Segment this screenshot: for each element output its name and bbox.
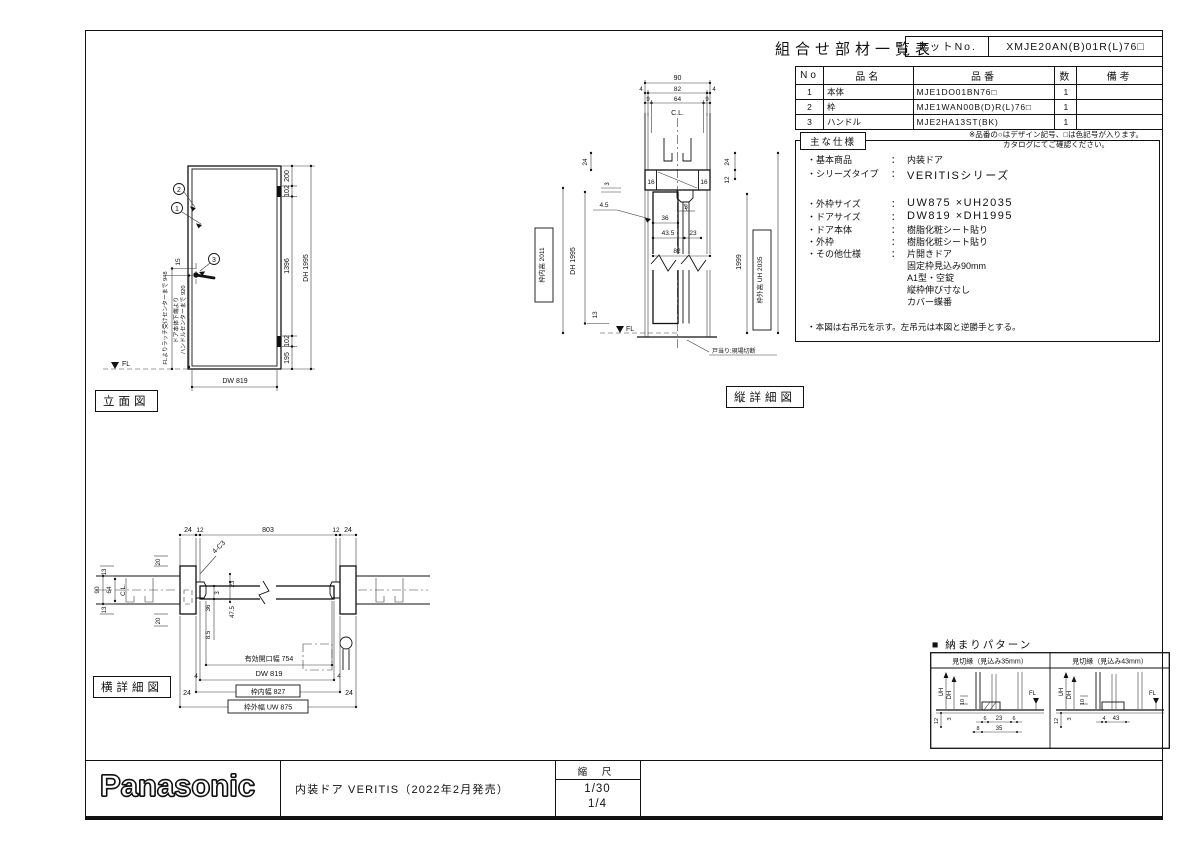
pattern-section: 見切縁（見込み35mm） 見切縁（見込み43mm） UH DH 10 12 3 …: [930, 652, 1170, 749]
row-name: 枠: [823, 100, 913, 115]
elevation-view: 2 1 3 200 102 1396 102 195 DH 1995: [85, 148, 340, 428]
dim-16-left: 16: [647, 179, 655, 186]
dim-dw: DW 819: [255, 669, 282, 678]
dim-24-right: 24: [724, 158, 731, 166]
set-no-value: XMJE20AN(B)01R(L)76□: [989, 37, 1162, 56]
table-row: 3 ハンドル MJE2HA13ST(BK) 1: [796, 115, 1163, 130]
dim-16-right: 16: [700, 179, 708, 186]
hdetail-bottom-dims: 有効開口幅 754 DW 819 4 4 枠内幅 827 24 24 枠外幅 U…: [179, 601, 357, 713]
parts-header-row: No 品名 品番 数 備考: [796, 67, 1163, 85]
dim-dw: DW 819: [222, 378, 247, 385]
hdetail-top-dims: 24 12 803 12 24: [179, 527, 357, 582]
pattern-35-drawing: UH DH 10 12 3 6 23 6 8 35 FL: [934, 672, 1044, 733]
product-line: 内装ドア VERITIS（2022年2月発売）: [295, 781, 509, 797]
hinge-bottom: [277, 336, 282, 347]
dim-64: 64: [106, 586, 113, 594]
dim-1396: 1396: [284, 258, 291, 274]
hdetail-inner-dims: 23 3 36 47.5 8.5: [206, 573, 236, 640]
row-part: MJE1DO01BN76□: [913, 85, 1055, 100]
row-name: ハンドル: [823, 115, 913, 130]
dim-102-top: 102: [284, 185, 291, 197]
dim-3: 3: [947, 717, 953, 720]
dim-803: 803: [262, 527, 274, 534]
dim-24-left: 24: [582, 158, 589, 166]
title-block-divider: [640, 760, 641, 818]
spec-colon: ：: [891, 153, 907, 166]
parts-note-line1: ※品番の○はデザイン記号、□は色記号が入ります。: [950, 130, 1162, 140]
fl-marker-icon: [616, 326, 624, 333]
spec-value: VERITISシリーズ: [907, 167, 1010, 183]
elevation-fl: FL: [103, 361, 190, 369]
dim-43-5: 43.5: [662, 230, 675, 237]
spec-label: ・シリーズタイプ: [807, 167, 891, 183]
row-remarks: [1077, 115, 1163, 130]
specs-title: 主な仕様: [800, 132, 866, 150]
row-remarks: [1077, 85, 1163, 100]
dim-3: 3: [1067, 717, 1073, 720]
vdetail-inner-dims: 4.5 36 3 43.5 23 82: [593, 202, 711, 257]
fl-label: FL: [122, 361, 130, 368]
door-stop-section: [677, 190, 693, 202]
vertical-detail-view: 90 4 82 4 9 64 9 C.L.: [525, 58, 785, 373]
spec-row: ・ドアサイズ：DW819 ×DH1995: [807, 210, 1013, 223]
dim-4-r: 4: [337, 673, 341, 680]
dim-12-right: 12: [724, 176, 731, 184]
hdetail-geometry: [96, 566, 430, 670]
spec-row: ・シリーズタイプ：VERITISシリーズ: [807, 167, 1010, 183]
left-door-stop: [196, 582, 206, 598]
uh-arrow-label: UH: [939, 688, 945, 697]
set-no-label: セットNo.: [906, 37, 989, 56]
dim-13: 13: [592, 311, 599, 319]
vdetail-left-dims: 24 3 枠内高 2011 DH 1995 13: [535, 152, 621, 334]
dim-8-5: 8.5: [206, 630, 212, 639]
dim-13-top: 13: [102, 568, 108, 575]
spec-row: ・外枠サイズ：UW875 ×UH2035: [807, 197, 1013, 210]
row-remarks: [1077, 100, 1163, 115]
col-no: No: [796, 67, 824, 85]
title-block-divider: [280, 760, 281, 818]
spec-value: カバー蝶番: [907, 295, 952, 308]
dim-opening: 有効開口幅 754: [245, 654, 294, 663]
dim-dh: DH 1995: [570, 247, 577, 275]
dim-12-r: 12: [332, 527, 340, 534]
scale-label: 縮 尺: [555, 764, 640, 778]
ceiling-runner: [664, 138, 672, 161]
dim-3: 3: [215, 591, 221, 595]
dim-3-left: 3: [605, 182, 611, 186]
dim-90: 90: [94, 586, 101, 594]
dim-20-bottom: 20: [156, 617, 162, 624]
vertical-detail-label: 縦詳細図: [726, 386, 804, 408]
pattern-section-title: ■ 納まりパターン: [932, 637, 1032, 652]
table-row: 1 本体 MJE1DO01BN76□ 1: [796, 85, 1163, 100]
doorstop-note: 戸当り:現場切断: [712, 347, 756, 355]
dim-20-top: 20: [156, 558, 162, 565]
spec-value: 内装ドア: [907, 153, 943, 166]
scale-value-1: 1/30: [555, 783, 640, 795]
row-qty: 1: [1055, 115, 1077, 130]
dim-3-stop: 3: [684, 204, 688, 211]
row-no: 3: [796, 115, 824, 130]
dim-82: 82: [674, 86, 682, 93]
dim-4: 4: [1102, 716, 1105, 722]
fl-label: FL: [1029, 691, 1037, 697]
dim-6-r: 6: [1012, 716, 1015, 722]
row-no: 1: [796, 85, 824, 100]
col-qty: 数: [1055, 67, 1077, 85]
box-outer-width: 枠外幅 UW 875: [244, 703, 292, 712]
dh-arrow-label: DH: [947, 691, 953, 700]
dim-82-door: 82: [673, 248, 681, 255]
callout-2: 2: [177, 187, 181, 194]
fl-marker-icon: [1153, 698, 1159, 704]
hinge-top: [277, 186, 282, 197]
dim-13-bottom: 13: [102, 606, 108, 613]
dim-12-l: 12: [196, 527, 204, 534]
pattern-43-header: 見切縁（見込み43mm）: [1072, 657, 1147, 666]
dim-10: 10: [960, 699, 966, 705]
spec-label: ・ドアサイズ: [807, 210, 891, 223]
dim-47-5: 47.5: [230, 606, 236, 618]
dim-4-5: 4.5: [599, 202, 608, 209]
callout-3: 3: [212, 257, 216, 264]
horizontal-detail-label: 横詳細図: [93, 676, 171, 698]
elevation-right-dims: 200 102 1396 102 195 DH 1995: [282, 165, 315, 370]
dim-36: 36: [206, 604, 212, 611]
right-jamb-section: [340, 566, 356, 614]
centerline-label: C.L.: [671, 110, 684, 117]
spec-row: カバー蝶番: [807, 295, 952, 308]
specs-note: ・本図は右吊元を示す。左吊元は本図と逆勝手とする。: [807, 321, 1021, 333]
dim-9-left: 9: [646, 97, 650, 103]
dim-23: 23: [996, 716, 1003, 722]
elevation-bottom-dims: DW 819: [191, 370, 278, 391]
dim-200: 200: [284, 170, 291, 182]
title-block-divider: [85, 760, 1163, 761]
dim-6-l: 6: [983, 716, 986, 722]
fl-label: FL: [1149, 691, 1157, 697]
dim-8: 8: [976, 726, 979, 732]
box-inner-height: 枠内高 2011: [537, 247, 546, 283]
scale-value-2: 1/4: [555, 798, 640, 810]
table-row: 2 枠 MJE1WAN00B(D)R(L)76□ 1: [796, 100, 1163, 115]
set-no-box: セットNo. XMJE20AN(B)01R(L)76□: [905, 36, 1163, 57]
dim-35: 35: [996, 726, 1003, 732]
col-remarks: 備考: [1077, 67, 1163, 85]
brand-logo: Panasonic: [100, 768, 255, 804]
dim-64: 64: [674, 96, 682, 103]
note-latch: FLよりラッチ受けセンターまで 948: [161, 271, 169, 364]
fl-marker-icon: [111, 362, 119, 369]
hdetail-c3-note: 4-C3: [200, 540, 227, 574]
spec-row: ・基本商品：内装ドア: [807, 153, 943, 166]
dh-arrow-label: DH: [1067, 691, 1073, 700]
dim-43: 43: [1113, 716, 1120, 722]
dim-24-il: 24: [183, 690, 191, 697]
note-handle-1: ドア本体下端より: [172, 297, 180, 343]
dim-24-ir: 24: [345, 690, 353, 697]
spec-colon: [891, 295, 907, 308]
dim-90: 90: [674, 75, 682, 82]
col-part: 品番: [913, 67, 1055, 85]
dim-24-l: 24: [184, 527, 192, 534]
dim-102-bottom: 102: [284, 335, 291, 347]
specs-box: ・基本商品：内装ドア ・シリーズタイプ：VERITISシリーズ ・外枠サイズ：U…: [795, 140, 1160, 342]
spec-colon: ：: [891, 197, 907, 210]
dim-15: 15: [175, 258, 182, 266]
dim-23: 23: [230, 580, 236, 587]
dim-12: 12: [934, 718, 940, 724]
note-handle-2: ハンドルセンターまで 920: [179, 285, 187, 354]
box-outer-height: 枠外高 UH 2035: [755, 256, 764, 303]
sheet-bottom-rule: [85, 816, 1163, 820]
centerline-label: C.L.: [120, 584, 127, 596]
dim-dh: DH 1995: [303, 254, 310, 282]
elevation-label: 立面図: [95, 390, 158, 412]
spec-colon: ：: [891, 210, 907, 223]
spec-value: UW875 ×UH2035: [907, 197, 1013, 210]
dim-4-right: 4: [712, 87, 716, 93]
dim-195: 195: [284, 352, 291, 364]
parts-table: No 品名 品番 数 備考 1 本体 MJE1DO01BN76□ 1 2 枠 M…: [795, 66, 1163, 130]
row-name: 本体: [823, 85, 913, 100]
c3-note: 4-C3: [211, 540, 227, 556]
spec-label: ・外枠サイズ: [807, 197, 891, 210]
fl-label: FL: [626, 326, 634, 333]
handle-plan: [340, 637, 352, 649]
scale-divider: [555, 779, 640, 780]
callout-1: 1: [175, 206, 179, 213]
uh-arrow-label: UH: [1059, 688, 1065, 697]
dim-23: 23: [689, 230, 697, 237]
spec-label: [807, 295, 891, 308]
vdetail-top-dims: 90 4 82 4 9 64 9 C.L.: [639, 75, 716, 133]
spec-colon: ：: [891, 167, 907, 183]
elevation-door-geometry: [188, 166, 282, 369]
hdetail-left-dims: 90 64 C.L. 13 13 20 20: [94, 556, 168, 626]
pattern-43-drawing: UH DH 10 12 3 4 43 FL: [1054, 672, 1164, 728]
dim-10: 10: [1080, 699, 1086, 705]
row-part: MJE1WAN00B(D)R(L)76□: [913, 100, 1055, 115]
fl-marker-icon: [1033, 698, 1039, 704]
pattern-35-header: 見切縁（見込み35mm）: [952, 657, 1027, 666]
dim-24-r: 24: [344, 527, 352, 534]
col-name: 品名: [823, 67, 913, 85]
dim-4-left: 4: [639, 87, 643, 93]
dim-9-right: 9: [705, 97, 709, 103]
box-inner-width: 枠内幅 827: [251, 687, 286, 696]
dim-12: 12: [1054, 718, 1060, 724]
spec-label: ・基本商品: [807, 153, 891, 166]
row-qty: 1: [1055, 100, 1077, 115]
dim-36: 36: [661, 215, 669, 222]
right-door-stop: [330, 582, 340, 598]
spec-value: DW819 ×DH1995: [907, 210, 1013, 223]
row-part: MJE2HA13ST(BK): [913, 115, 1055, 130]
row-qty: 1: [1055, 85, 1077, 100]
row-no: 2: [796, 100, 824, 115]
vdetail-right-dims: 24 12 1999 枠外高 UH 2035: [724, 152, 779, 334]
dim-1999: 1999: [736, 254, 743, 270]
vdetail-doorstop-note: 戸当り:現場切断: [687, 340, 777, 355]
vdetail-geometry: FL: [600, 113, 717, 348]
